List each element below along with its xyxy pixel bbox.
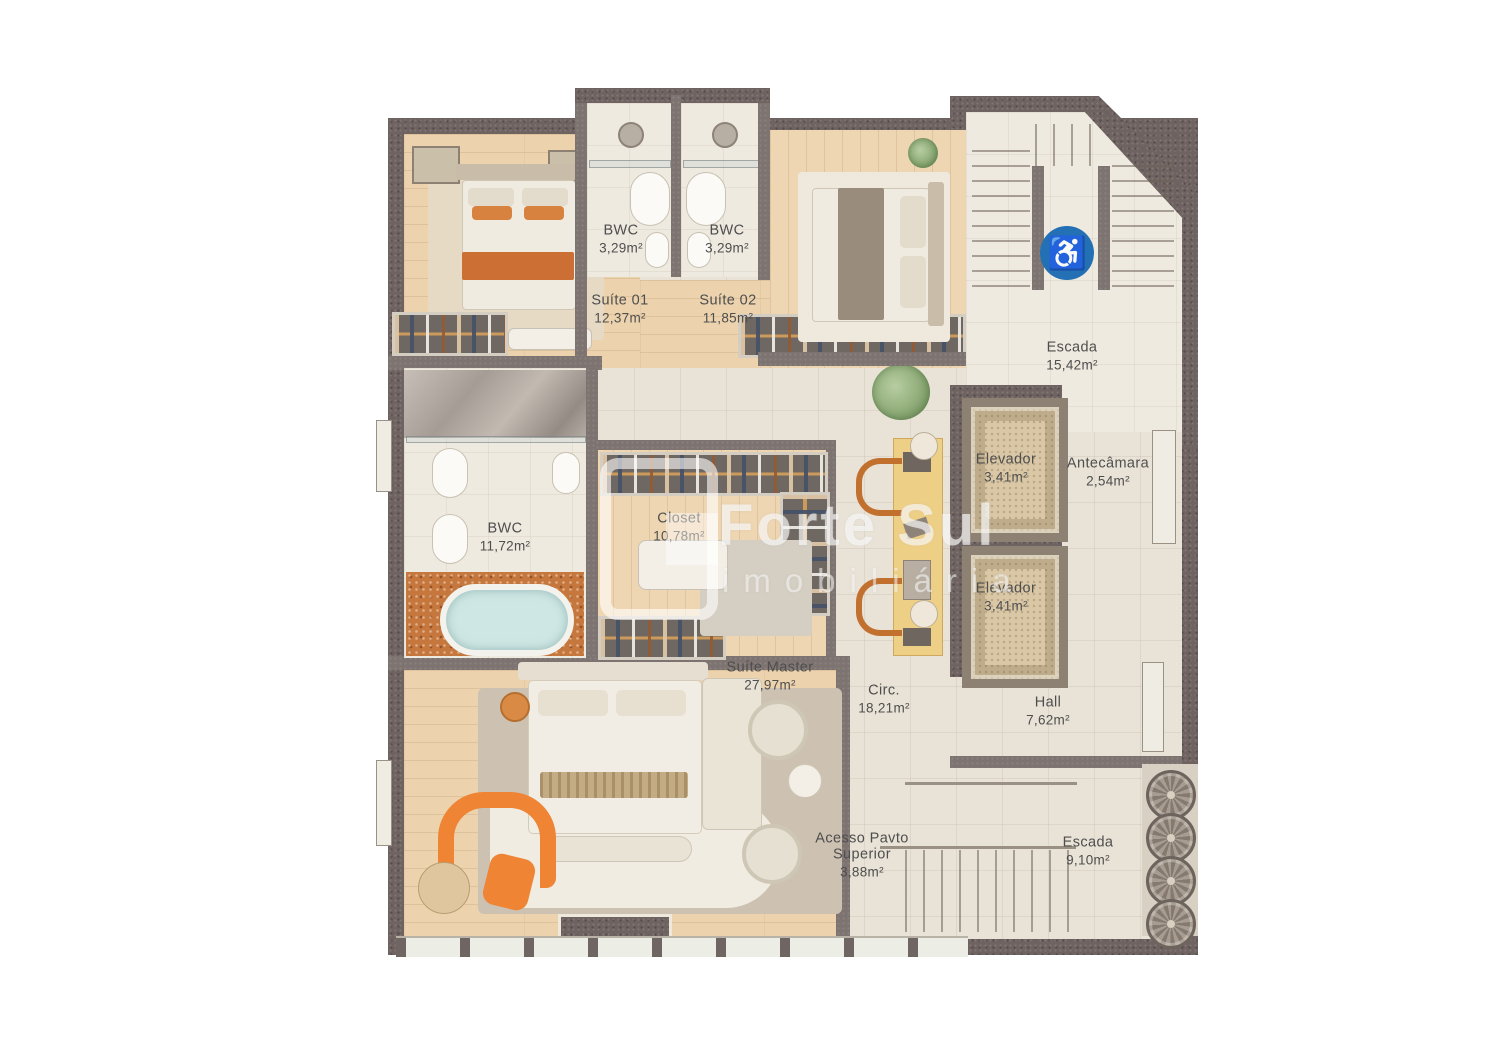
wall: [671, 95, 681, 277]
suite-master-bed-headboard: [518, 662, 708, 680]
window-sill: [1152, 430, 1176, 544]
shower-glass: [406, 436, 586, 443]
wheelchair-icon: ♿: [1047, 237, 1087, 269]
room-label-elevador-1: Elevador 3,41m²: [976, 452, 1036, 485]
stairs: [972, 150, 1030, 290]
fan-icon: [1146, 899, 1196, 949]
room-label-bwc-01: BWC 3,29m²: [599, 223, 643, 256]
desk-chair: [856, 458, 902, 516]
sink: [432, 448, 468, 498]
elevator-cab: [962, 546, 1068, 688]
toilet: [645, 232, 669, 268]
wall: [758, 103, 770, 280]
pillow-orange: [472, 206, 512, 220]
shower-glass: [589, 160, 671, 168]
wardrobe-rack: [392, 312, 508, 356]
lounge-chair: [742, 824, 802, 884]
room-label-acesso: Acesso Pavto Superior 3,88m²: [815, 831, 908, 880]
stairs: [1112, 165, 1174, 290]
window-sill: [376, 420, 392, 492]
pouf: [788, 764, 822, 798]
shower-head: [712, 122, 738, 148]
stairs: [905, 850, 1077, 932]
room-label-hall: Hall 7,62m²: [1026, 695, 1070, 728]
throw-blanket: [540, 772, 688, 798]
sink: [630, 172, 670, 226]
floor-lamp: [418, 862, 470, 914]
fortesul-logo: [600, 458, 718, 620]
room-label-escada-inferior: Escada 9,10m²: [1063, 835, 1114, 868]
desk-chair: [856, 578, 902, 636]
suite-02-bed-headboard: [928, 182, 944, 326]
room-label-escada-superior: Escada 15,42m²: [1046, 340, 1098, 373]
wall: [1098, 166, 1110, 290]
room-label-suite-02: Suíte 02 11,85m²: [699, 293, 756, 326]
handrail: [905, 782, 1077, 785]
pillow: [616, 690, 686, 716]
blanket: [838, 188, 884, 320]
shower-head: [618, 122, 644, 148]
desk-object: [903, 628, 931, 646]
pillow: [522, 188, 568, 206]
shower-glass: [683, 160, 765, 168]
window-sill: [376, 760, 392, 846]
desk-lamp: [910, 600, 938, 628]
room-label-suite-master: Suíte Master 27,97m²: [727, 660, 814, 693]
bed-bench: [544, 836, 692, 862]
sink: [432, 514, 468, 564]
bed-chaise: [702, 678, 762, 830]
picture-frame: [412, 146, 460, 184]
shower-marble: [404, 370, 586, 438]
wall: [595, 440, 835, 450]
wall: [1032, 166, 1044, 290]
suite-01-bed-headboard: [456, 164, 580, 180]
toilet: [552, 452, 580, 494]
room-label-bwc-master: BWC 11,72m²: [480, 521, 531, 554]
pillow: [900, 196, 926, 248]
tree: [872, 364, 930, 420]
pillow: [900, 256, 926, 308]
window-sill: [1142, 662, 1164, 752]
wall: [586, 368, 598, 668]
room-label-circ: Circ. 18,21m²: [858, 683, 910, 716]
wheelchair-badge: ♿: [1040, 226, 1094, 280]
room-label-elevador-2: Elevador 3,41m²: [976, 581, 1036, 614]
wall: [575, 103, 587, 368]
pillow: [468, 188, 514, 206]
lounge-chair: [748, 700, 808, 760]
wall: [758, 352, 966, 366]
floor-plan: ♿: [0, 0, 1485, 1050]
blanket-orange: [462, 252, 574, 280]
room-label-antecamara: Antecâmara 2,54m²: [1067, 456, 1149, 489]
desk-lamp: [910, 432, 938, 460]
pillow-orange: [524, 206, 564, 220]
sink: [686, 172, 726, 226]
side-table: [500, 692, 530, 722]
room-label-suite-01: Suíte 01 12,37m²: [591, 293, 648, 326]
room-label-bwc-02: BWC 3,29m²: [705, 223, 749, 256]
handrail: [880, 846, 1076, 849]
desk-object: [903, 560, 931, 600]
pillow: [538, 690, 608, 716]
window-band: [396, 936, 968, 957]
stairs: [1035, 124, 1107, 166]
plant: [908, 138, 938, 168]
bathtub: [440, 584, 574, 656]
